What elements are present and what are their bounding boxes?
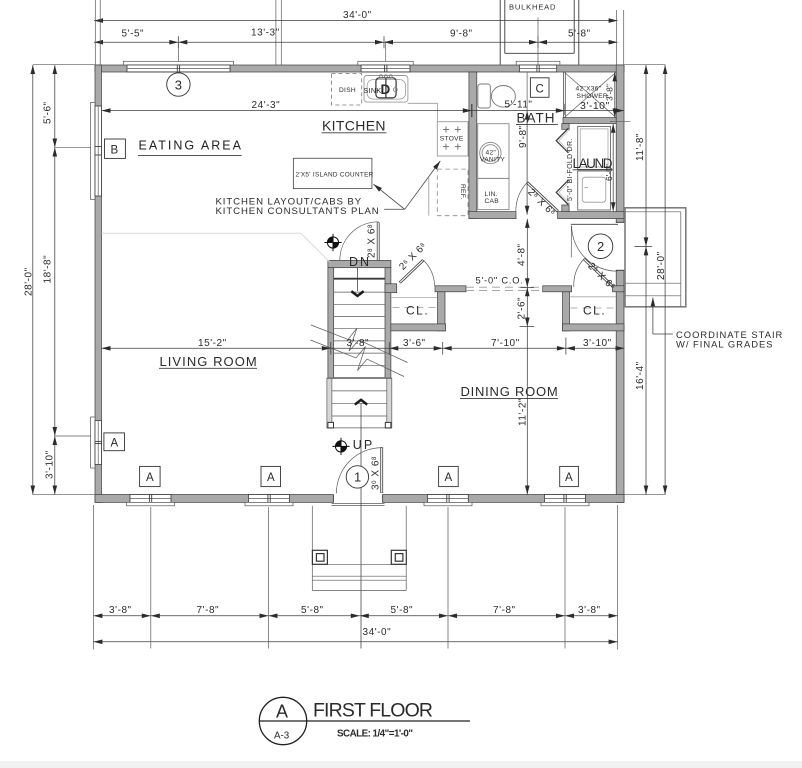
svg-text:7'-8": 7'-8": [493, 605, 516, 616]
svg-text:LIN.: LIN.: [485, 191, 498, 198]
svg-text:3: 3: [175, 77, 182, 92]
svg-text:SINK: SINK: [364, 86, 382, 95]
svg-text:11'-2": 11'-2": [518, 398, 529, 426]
svg-text:A: A: [445, 472, 453, 484]
svg-text:2'X5' ISLAND COUNTER: 2'X5' ISLAND COUNTER: [296, 171, 374, 178]
svg-text:DISH: DISH: [339, 87, 356, 94]
svg-text:34'-0": 34'-0": [363, 627, 392, 638]
svg-text:CAB: CAB: [485, 198, 500, 205]
svg-text:W/ FINAL GRADES: W/ FINAL GRADES: [676, 339, 773, 350]
svg-text:5'-0" C.O.: 5'-0" C.O.: [476, 276, 524, 286]
svg-text:STOVE: STOVE: [440, 136, 464, 143]
svg-text:11'-8": 11'-8": [635, 133, 646, 161]
svg-text:A: A: [565, 472, 573, 484]
svg-text:A: A: [276, 702, 288, 722]
svg-text:30 X 68: 30 X 68: [371, 456, 382, 490]
svg-text:42": 42": [486, 150, 497, 157]
svg-text:15'-2": 15'-2": [198, 338, 227, 349]
svg-text:5'-8": 5'-8": [568, 28, 591, 39]
svg-text:2'-6": 2'-6": [517, 297, 528, 320]
svg-text:KITCHEN: KITCHEN: [322, 117, 389, 133]
svg-text:SCALE: 1/4"=1'-0": SCALE: 1/4"=1'-0": [337, 729, 413, 740]
svg-text:3'-8": 3'-8": [109, 605, 132, 616]
svg-text:A-3: A-3: [274, 731, 290, 742]
svg-text:CL.: CL.: [583, 304, 606, 318]
svg-text:3'-6": 3'-6": [403, 338, 426, 349]
svg-text:3'-10": 3'-10": [583, 338, 612, 349]
svg-text:3'-8": 3'-8": [347, 338, 370, 349]
svg-text:KITCHEN CONSULTANTS PLAN: KITCHEN CONSULTANTS PLAN: [216, 206, 380, 217]
svg-text:3'-10": 3'-10": [45, 450, 56, 479]
svg-text:4'-8": 4'-8": [517, 243, 528, 266]
svg-text:13'-3": 13'-3": [251, 28, 280, 39]
svg-text:A: A: [146, 472, 154, 484]
svg-text:5'-8": 5'-8": [301, 605, 324, 616]
svg-text:UP: UP: [353, 438, 374, 452]
svg-text:1: 1: [354, 470, 361, 485]
svg-text:FIRST FLOOR: FIRST FLOOR: [313, 700, 433, 722]
svg-text:6'-0": 6'-0": [604, 164, 614, 181]
svg-text:9'-8": 9'-8": [518, 125, 529, 148]
svg-text:BATH: BATH: [517, 111, 557, 126]
svg-text:34'-0": 34'-0": [343, 10, 372, 21]
svg-text:5'-11": 5'-11": [505, 100, 533, 111]
svg-text:16'-4": 16'-4": [635, 361, 646, 390]
svg-text:B: B: [111, 145, 119, 157]
svg-text:7'-10": 7'-10": [491, 338, 520, 349]
svg-text:A: A: [267, 472, 275, 484]
svg-text:7'-8": 7'-8": [197, 605, 220, 616]
svg-text:9'-8": 9'-8": [450, 28, 473, 39]
svg-text:2: 2: [597, 239, 604, 254]
svg-text:28'-0": 28'-0": [24, 267, 35, 296]
svg-text:REF.: REF.: [459, 184, 466, 200]
svg-text:D: D: [381, 82, 391, 97]
svg-text:CL.: CL.: [406, 304, 429, 318]
svg-text:28'-0": 28'-0": [656, 251, 667, 280]
svg-text:C: C: [536, 83, 544, 95]
svg-text:3'-8": 3'-8": [578, 605, 601, 616]
svg-text:5'-8": 5'-8": [391, 605, 414, 616]
svg-text:5'-6": 5'-6": [43, 101, 54, 124]
svg-text:LIVING ROOM: LIVING ROOM: [160, 354, 260, 369]
svg-text:24'-3": 24'-3": [252, 100, 281, 111]
svg-text:28 X 68: 28 X 68: [367, 224, 378, 258]
svg-text:VANITY: VANITY: [480, 157, 505, 164]
svg-text:EATING AREA: EATING AREA: [139, 139, 244, 153]
svg-text:42"X36": 42"X36": [576, 86, 602, 93]
svg-text:3'-8": 3'-8": [605, 84, 615, 101]
svg-text:5'-5": 5'-5": [122, 28, 145, 39]
svg-text:18'-8": 18'-8": [43, 255, 54, 284]
svg-text:A: A: [111, 437, 119, 449]
svg-text:BULKHEAD: BULKHEAD: [509, 3, 556, 12]
svg-text:DINING ROOM: DINING ROOM: [461, 384, 561, 399]
